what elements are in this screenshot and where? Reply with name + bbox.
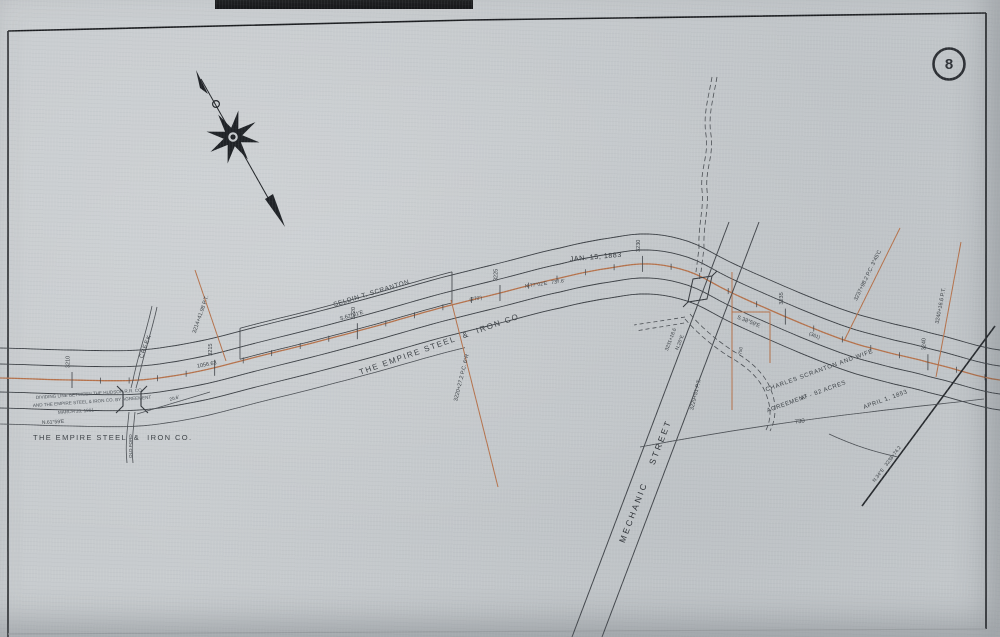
station-equation-3229: 3229+51 P.T. [689, 378, 703, 411]
dimension-label-361: (361) [808, 331, 821, 341]
note-line-3: MARCH 20, 1901 [58, 407, 95, 415]
stream-upper-west-bank [696, 77, 712, 272]
map-canvas: 8 3210321532203225323032353240 [0, 0, 1000, 637]
owner-label-charles-1: CHARLES SCRANTON AND WIFE [765, 349, 874, 394]
creek-lower-label: OLD FORD [128, 434, 133, 458]
tangent-line-3237 [844, 228, 900, 341]
station-label: 3240 [921, 338, 927, 350]
mechanic-street-line-east [602, 222, 759, 637]
date-label: JAN. 15, 1883 [570, 252, 623, 264]
old-channel-north-bank [634, 317, 685, 325]
dimension-label-750: 750 [737, 346, 743, 355]
owner-label-charles-3: AGREEMENT [766, 394, 809, 414]
station-label: 3215 [208, 344, 214, 356]
dimension-label-206: 20.6' [169, 394, 180, 402]
fence-curve-to-junction [829, 434, 898, 457]
station-label: 3225 [494, 269, 500, 281]
station-label: 3230 [636, 240, 642, 252]
track-bearing-label: N.77°02'E 737.6' [525, 278, 566, 290]
sheet-number: 8 [945, 56, 953, 73]
property-line-n34e [862, 326, 995, 506]
station-equation-3240: 3240+16.6 P.T. [935, 287, 948, 324]
south-arrow-icon [265, 194, 285, 227]
stream-lower-east-bank [685, 319, 770, 432]
bearing-label-s3859: S.38°59'E [736, 315, 761, 330]
street-name-label: MECHANIC STREET [617, 418, 673, 544]
bearing-label-n34e: N.34°E 3238+74.2 [872, 445, 903, 484]
sheet-number-badge: 8 [934, 49, 965, 80]
owner-label-empire-bottom: THE EMPIRE STEEL & IRON CO. [33, 433, 193, 442]
compass-rose [196, 70, 285, 227]
scan-edge-bar [215, 0, 473, 9]
compass-center-dot-icon [230, 134, 235, 139]
station-equation-3220: 3220+27.2 P.C. 6°R [453, 354, 471, 402]
bottom-sheet-edge [8, 629, 986, 634]
distance-label-730: 730 [795, 418, 806, 425]
agreement-date-label: APRIL 1, 1853 [863, 389, 909, 411]
stream-upper-east-bank [701, 77, 717, 272]
station-equation-3214: 3214+41.98 P.T. [192, 295, 211, 335]
owner-label-seldin: SELDIN T. SCRANTON [333, 279, 411, 309]
bearing-label-n26: N.26°E [674, 334, 686, 352]
station-equation-3237: 3237+98.2 P.C. 3°45'C [853, 249, 883, 302]
map-sheet: 8 3210321532203225323032353240 [0, 0, 1000, 637]
top-border-line [8, 13, 986, 31]
owner-label-empire-diagonal: THE EMPIRE STEEL & IRON CO. [358, 310, 524, 376]
annotations: JAN. 15, 1883 SELDIN T. SCRANTON S.62°01… [33, 249, 948, 544]
station-label: 3235 [779, 292, 785, 304]
north-arrow-icon [196, 70, 208, 94]
bearing-label-n6159: N.61°59'E [42, 419, 65, 426]
dimension-label-270: (270') [469, 295, 483, 303]
stream-lower-west-bank [690, 314, 775, 431]
station-label: 3210 [66, 356, 72, 368]
